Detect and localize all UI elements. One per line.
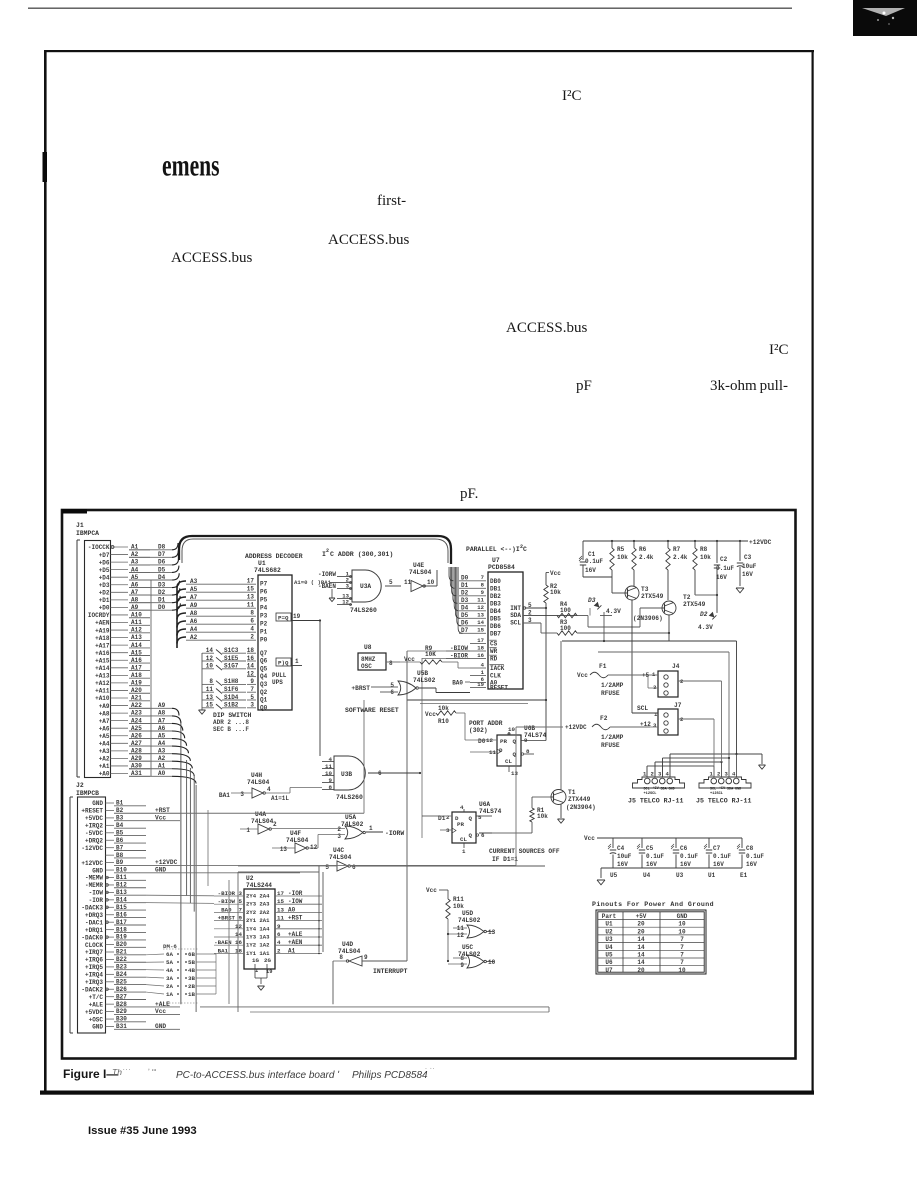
svg-text:(302): (302): [469, 727, 488, 734]
svg-text:(2N3906): (2N3906): [633, 615, 663, 622]
svg-text:DB3: DB3: [490, 601, 501, 608]
svg-text:74LS260: 74LS260: [350, 607, 377, 614]
svg-text:1: 1: [246, 827, 250, 834]
svg-text:74LS74: 74LS74: [479, 808, 502, 815]
svg-text:74LS04: 74LS04: [329, 854, 352, 861]
svg-text:SDA: SDA: [727, 788, 734, 792]
svg-text:I²C: I²C: [769, 342, 789, 358]
svg-text:+A3: +A3: [99, 748, 110, 755]
svg-text:9: 9: [460, 962, 464, 969]
svg-text:74LS02: 74LS02: [458, 917, 481, 924]
svg-text:INTERRUPT: INTERRUPT: [373, 968, 408, 975]
svg-text:16V: 16V: [742, 571, 753, 578]
svg-text:10: 10: [325, 770, 332, 777]
svg-text:15: 15: [477, 627, 484, 634]
svg-text:-5VDC: -5VDC: [85, 830, 103, 837]
svg-text:74LS04: 74LS04: [251, 818, 274, 825]
svg-text:+A11: +A11: [95, 688, 110, 695]
svg-text:1: 1: [369, 825, 373, 832]
svg-text:C6: C6: [680, 845, 688, 852]
svg-text:-IORW: -IORW: [318, 571, 336, 578]
svg-text:PORT ADDR: PORT ADDR: [469, 720, 503, 727]
svg-text:+IRQ3: +IRQ3: [85, 979, 103, 986]
svg-text:2Y3 2A3: 2Y3 2A3: [246, 901, 270, 908]
svg-text:U4H: U4H: [251, 772, 262, 779]
svg-text:(2N3904): (2N3904): [566, 804, 596, 811]
svg-text:+D6: +D6: [99, 559, 110, 566]
svg-text:Philips PCD8584: Philips PCD8584: [352, 1070, 428, 1081]
svg-text:GND: GND: [677, 913, 688, 920]
svg-text:RESET: RESET: [490, 685, 508, 692]
svg-text:10: 10: [678, 921, 686, 928]
svg-text:10k: 10k: [537, 813, 548, 820]
svg-text:PARALLEL <--)I: PARALLEL <--)I: [466, 546, 520, 553]
svg-text:2Y2 2A2: 2Y2 2A2: [246, 909, 270, 916]
svg-text:C2: C2: [720, 556, 728, 563]
svg-text:1/2AMP: 1/2AMP: [601, 682, 624, 689]
svg-text:INT: INT: [510, 605, 521, 612]
svg-text:+D7: +D7: [99, 552, 110, 559]
svg-text:1Y4 1A4: 1Y4 1A4: [246, 925, 270, 932]
svg-text:U6B: U6B: [524, 725, 535, 732]
svg-text:C1: C1: [588, 551, 596, 558]
svg-text:20: 20: [637, 967, 645, 974]
svg-text:+A15: +A15: [95, 657, 110, 664]
svg-text:3B: 3B: [188, 975, 195, 982]
svg-text:BA1: BA1: [219, 792, 230, 799]
svg-text:R8: R8: [700, 546, 708, 553]
svg-text:Q: Q: [469, 832, 473, 839]
svg-text:Q1: Q1: [260, 697, 268, 704]
svg-text:+AEN: +AEN: [95, 620, 110, 627]
svg-text:IBMPCB: IBMPCB: [76, 790, 99, 797]
svg-text:1B: 1B: [188, 991, 195, 998]
svg-text:+A17: +A17: [95, 642, 110, 649]
svg-text:4.3V: 4.3V: [606, 608, 621, 615]
svg-text:10: 10: [427, 579, 435, 586]
svg-text:5A: 5A: [166, 959, 173, 966]
svg-text:2B: 2B: [188, 983, 195, 990]
svg-text:20: 20: [637, 921, 645, 928]
svg-text:first-: first-: [377, 193, 406, 209]
svg-text:11: 11: [404, 579, 412, 586]
svg-text:+DRQ3: +DRQ3: [85, 912, 103, 919]
svg-text:CLOCK: CLOCK: [85, 942, 103, 949]
svg-text:ZTX449: ZTX449: [568, 796, 591, 803]
svg-text:5: 5: [390, 682, 394, 689]
svg-text:10k: 10k: [617, 554, 628, 561]
svg-text:U3: U3: [676, 872, 684, 879]
svg-text:16V: 16V: [617, 861, 628, 868]
svg-text:PULL: PULL: [272, 672, 287, 679]
svg-text:2G: 2G: [264, 957, 271, 964]
svg-text:CS: CS: [490, 641, 498, 648]
svg-text:14: 14: [637, 959, 645, 966]
svg-text:4B: 4B: [188, 967, 195, 974]
svg-text:P2: P2: [260, 621, 268, 628]
svg-text:F1: F1: [599, 663, 607, 670]
svg-text:U1: U1: [605, 921, 613, 928]
svg-text:16V: 16V: [646, 861, 657, 868]
svg-text:0.1uF: 0.1uF: [585, 558, 603, 565]
svg-text:ADR 2 ...8: ADR 2 ...8: [213, 719, 249, 726]
svg-text:IOCRDY: IOCRDY: [88, 612, 110, 619]
svg-text:8MHZ: 8MHZ: [361, 656, 376, 663]
svg-text:2Y1 2A1: 2Y1 2A1: [246, 917, 270, 924]
svg-text:Figure I—: Figure I—: [63, 1067, 118, 1081]
svg-text:4: 4: [460, 804, 464, 811]
svg-text:R10: R10: [438, 718, 449, 725]
svg-text:-MEMR: -MEMR: [85, 882, 103, 889]
svg-text:R6: R6: [639, 546, 647, 553]
svg-text:U6A: U6A: [479, 801, 490, 808]
svg-text:C8: C8: [746, 845, 754, 852]
svg-text:7: 7: [680, 936, 684, 943]
svg-text:CL: CL: [460, 836, 467, 843]
svg-text:+D3: +D3: [99, 582, 110, 589]
svg-text:1Y1 1A1: 1Y1 1A1: [246, 950, 270, 957]
svg-text:-12VDC: -12VDC: [81, 845, 103, 852]
svg-text:U3: U3: [605, 936, 613, 943]
svg-text:10k: 10k: [700, 554, 711, 561]
svg-text:Q: Q: [469, 815, 473, 822]
svg-text:14: 14: [477, 619, 484, 626]
svg-text:Vcc: Vcc: [584, 835, 595, 842]
svg-text:P1: P1: [260, 629, 268, 636]
svg-text:9: 9: [329, 777, 333, 784]
svg-text:IF D1=1: IF D1=1: [492, 856, 518, 863]
svg-text:+A10: +A10: [95, 695, 110, 702]
svg-text:+IRQ5: +IRQ5: [85, 964, 103, 971]
svg-text:16V: 16V: [716, 574, 727, 581]
svg-text:2: 2: [446, 814, 450, 821]
svg-text:Q7: Q7: [260, 650, 268, 657]
svg-text:10: 10: [508, 726, 515, 733]
svg-text:1: 1: [295, 658, 299, 665]
svg-text:4A: 4A: [166, 967, 173, 974]
svg-text:R5: R5: [617, 546, 625, 553]
svg-text:BA0: BA0: [452, 680, 463, 687]
svg-text:2: 2: [273, 821, 277, 828]
svg-text:R7: R7: [673, 546, 681, 553]
svg-text:J5 TELCO RJ-11: J5 TELCO RJ-11: [628, 798, 683, 805]
svg-text:J1: J1: [76, 522, 84, 529]
svg-text:16V: 16V: [713, 861, 724, 868]
svg-text:1/2AMP: 1/2AMP: [601, 734, 624, 741]
svg-text:U5D: U5D: [462, 910, 473, 917]
svg-text:10k: 10k: [550, 589, 561, 596]
svg-text:12: 12: [310, 844, 318, 851]
svg-text:+5VDC: +5VDC: [85, 815, 103, 822]
svg-text:U3B: U3B: [341, 771, 352, 778]
svg-text:Vcc: Vcc: [425, 711, 436, 718]
svg-text:+D0: +D0: [99, 605, 110, 612]
svg-text:13: 13: [511, 770, 518, 777]
svg-text:13: 13: [488, 929, 496, 936]
svg-text:J4: J4: [672, 663, 680, 670]
svg-text:SCL: SCL: [644, 788, 650, 792]
svg-text:J7: J7: [674, 702, 682, 709]
svg-text:˙ ˙˙: ˙ ˙˙: [425, 1067, 435, 1076]
svg-text:U4E: U4E: [413, 562, 424, 569]
svg-text:17: 17: [247, 578, 255, 585]
svg-text:12: 12: [457, 932, 465, 939]
svg-text:ACCESS.bus: ACCESS.bus: [506, 320, 587, 336]
svg-text:10K: 10K: [425, 651, 436, 658]
svg-text:P0: P0: [260, 637, 268, 644]
svg-text:1Y3 1A3: 1Y3 1A3: [246, 934, 270, 941]
svg-text:RFUSE: RFUSE: [601, 690, 620, 697]
svg-text:SOFTWARE RESET: SOFTWARE RESET: [345, 707, 399, 714]
svg-text:emens: emens: [162, 148, 220, 183]
svg-text:U4C: U4C: [333, 847, 344, 854]
svg-text:U5B: U5B: [417, 670, 428, 677]
svg-text:+A8: +A8: [99, 710, 110, 717]
svg-text:E1: E1: [740, 872, 748, 879]
svg-text:11: 11: [489, 749, 496, 756]
svg-text:T2: T2: [683, 594, 691, 601]
svg-text:+A13: +A13: [95, 673, 110, 680]
svg-text:+A5: +A5: [99, 733, 110, 740]
svg-text:IACK: IACK: [490, 665, 505, 672]
svg-text:+A14: +A14: [95, 665, 110, 672]
svg-text:DB1: DB1: [490, 586, 501, 593]
svg-text:+5V: +5V: [653, 787, 660, 791]
svg-text:A1=1L: A1=1L: [271, 795, 289, 802]
svg-text:10: 10: [678, 967, 686, 974]
svg-text:74LS04: 74LS04: [409, 569, 432, 576]
svg-text:SCL: SCL: [510, 620, 521, 627]
svg-text:C5: C5: [646, 845, 654, 852]
svg-text:7: 7: [680, 959, 684, 966]
svg-text:2A: 2A: [166, 983, 173, 990]
svg-text:+IRQ6: +IRQ6: [85, 957, 103, 964]
svg-text:P3: P3: [260, 613, 268, 620]
svg-text:U4: U4: [605, 944, 613, 951]
svg-text:+12VDC: +12VDC: [749, 539, 772, 546]
svg-text:-IORW: -IORW: [385, 830, 404, 837]
svg-text:0.1uF: 0.1uF: [713, 853, 731, 860]
svg-text:GND: GND: [92, 800, 103, 807]
svg-text:16V: 16V: [585, 567, 596, 574]
svg-text:2.4k: 2.4k: [639, 554, 654, 561]
svg-text:-DACK0: -DACK0: [81, 934, 103, 941]
svg-text:74LS682: 74LS682: [254, 567, 281, 574]
svg-text:+A12: +A12: [95, 680, 110, 687]
svg-text:14: 14: [637, 936, 645, 943]
svg-text:5: 5: [478, 814, 482, 821]
svg-text:4: 4: [329, 756, 333, 763]
svg-text:74LS244: 74LS244: [246, 882, 272, 889]
svg-text:9: 9: [364, 954, 368, 961]
svg-text:7: 7: [481, 574, 484, 581]
svg-text:SDA: SDA: [661, 788, 668, 792]
svg-text:Pinouts For Power And Ground: Pinouts For Power And Ground: [592, 901, 714, 908]
svg-text:U5A: U5A: [345, 814, 356, 821]
svg-text:Vcc: Vcc: [550, 570, 561, 577]
svg-text:+D4: +D4: [99, 574, 110, 581]
svg-text:-IOCCK: -IOCCK: [88, 544, 110, 551]
svg-text:10uF: 10uF: [742, 563, 757, 570]
svg-text:5B: 5B: [188, 959, 195, 966]
svg-text:+A1: +A1: [99, 763, 110, 770]
svg-text:ADDRESS DECODER: ADDRESS DECODER: [245, 553, 303, 560]
svg-text:U7: U7: [605, 967, 613, 974]
svg-text:D3: D3: [588, 597, 596, 604]
svg-text:U4D: U4D: [342, 941, 353, 948]
svg-text:C ADDR (300,301): C ADDR (300,301): [330, 551, 393, 558]
svg-text:+12SCL: +12SCL: [644, 792, 657, 796]
svg-text:2: 2: [250, 634, 254, 641]
svg-text:Q0: Q0: [260, 704, 268, 711]
svg-text:RD: RD: [490, 656, 498, 663]
svg-text:PC-to-ACCESS.bus interface boa: PC-to-ACCESS.bus interface board ʹ: [176, 1070, 340, 1081]
svg-text:4.3V: 4.3V: [698, 624, 713, 631]
svg-text:4: 4: [267, 786, 271, 793]
svg-text:+A0: +A0: [99, 771, 110, 778]
svg-text:SCL: SCL: [637, 705, 648, 712]
svg-text:Q4: Q4: [260, 673, 268, 680]
svg-text:+A19: +A19: [95, 627, 110, 634]
svg-text:Q5: Q5: [260, 665, 268, 672]
svg-text:+D1: +D1: [99, 597, 110, 604]
svg-text:1Y2 1A2: 1Y2 1A2: [246, 942, 270, 949]
svg-text:3: 3: [446, 827, 450, 834]
svg-text:Th˙˙˙: Th˙˙˙: [112, 1067, 131, 1077]
svg-text:U8: U8: [364, 644, 372, 651]
svg-text:D0: D0: [478, 738, 486, 745]
svg-text:-DAC1: -DAC1: [85, 919, 103, 926]
svg-text:RFUSE: RFUSE: [601, 742, 620, 749]
svg-text:Vcc: Vcc: [426, 887, 437, 894]
svg-text:13: 13: [280, 846, 288, 853]
svg-text:3A: 3A: [166, 975, 173, 982]
svg-text:P=Q: P=Q: [278, 615, 289, 622]
svg-text:CLK: CLK: [490, 673, 501, 680]
svg-text:DB6: DB6: [490, 623, 501, 630]
svg-text:-MEMW: -MEMW: [85, 875, 103, 882]
svg-text:ʼ ʺʹ: ʼ ʺʹ: [148, 1068, 157, 1077]
svg-text:0.1uF: 0.1uF: [746, 853, 764, 860]
svg-text:P5: P5: [260, 597, 268, 604]
svg-text:2.4k: 2.4k: [673, 554, 688, 561]
svg-text:100: 100: [560, 607, 571, 614]
svg-text:16V: 16V: [746, 861, 757, 868]
svg-text:-IOW: -IOW: [89, 890, 104, 897]
svg-text:8: 8: [389, 660, 393, 667]
svg-text:12: 12: [477, 604, 484, 611]
svg-text:U5: U5: [605, 952, 613, 959]
svg-text:1: 1: [255, 968, 258, 974]
svg-text:CL: CL: [505, 758, 512, 765]
svg-text:7: 7: [680, 944, 684, 951]
svg-text:8: 8: [339, 954, 343, 961]
svg-text:SDA: SDA: [510, 612, 521, 619]
svg-text:3k-ohm pull-: 3k-ohm pull-: [710, 378, 788, 394]
svg-text:P7: P7: [260, 581, 268, 588]
svg-text:+OSC: +OSC: [89, 1016, 104, 1023]
svg-text:13: 13: [247, 594, 255, 601]
svg-text:Vcc: Vcc: [577, 672, 588, 679]
svg-text:OSC: OSC: [361, 663, 372, 670]
svg-text:10: 10: [678, 928, 686, 935]
svg-text:+BRST: +BRST: [351, 685, 370, 692]
svg-text:10: 10: [488, 959, 496, 966]
svg-text:11: 11: [325, 763, 332, 770]
svg-text:+IRQ7: +IRQ7: [85, 949, 103, 956]
svg-text:+A7: +A7: [99, 718, 110, 725]
svg-text:U4F: U4F: [290, 830, 301, 837]
svg-text:14: 14: [637, 952, 645, 959]
svg-text:+A18: +A18: [95, 635, 110, 642]
svg-text:+A9: +A9: [99, 703, 110, 710]
svg-text:6B: 6B: [188, 951, 195, 958]
svg-text:2Y4 2A4: 2Y4 2A4: [246, 893, 270, 900]
svg-text:WR: WR: [490, 648, 498, 655]
svg-text:DB0: DB0: [490, 578, 501, 585]
svg-text:DB4: DB4: [490, 608, 501, 615]
svg-text:11: 11: [247, 602, 255, 609]
svg-text:+D2: +D2: [99, 590, 110, 597]
svg-text:74LS04: 74LS04: [247, 779, 270, 786]
svg-text:6: 6: [250, 618, 254, 625]
svg-text:F2: F2: [600, 715, 608, 722]
svg-text:+5VDC: +5VDC: [85, 1009, 103, 1016]
svg-text:+5: +5: [642, 672, 650, 679]
svg-text:+12VDC: +12VDC: [81, 860, 103, 867]
svg-text:C3: C3: [744, 554, 752, 561]
svg-text:ACCESS.bus: ACCESS.bus: [171, 250, 252, 266]
svg-text:+12VDC: +12VDC: [565, 724, 587, 731]
svg-text:+D5: +D5: [99, 567, 110, 574]
svg-text:10uF: 10uF: [617, 853, 632, 860]
svg-text:DB5: DB5: [490, 616, 501, 623]
svg-text:DIP SWITCH: DIP SWITCH: [213, 712, 252, 719]
svg-text:2: 2: [337, 826, 341, 833]
svg-text:Issue #35 June 1993: Issue #35 June 1993: [88, 1125, 197, 1137]
svg-text:SCL: SCL: [710, 788, 716, 792]
svg-text:-IOR: -IOR: [89, 897, 104, 904]
svg-text:J2: J2: [76, 782, 84, 789]
svg-text:U2: U2: [246, 875, 254, 882]
svg-text:20: 20: [637, 928, 645, 935]
svg-text:8: 8: [329, 784, 333, 791]
svg-text:GND: GND: [92, 1024, 103, 1031]
svg-text:I²C: I²C: [562, 88, 582, 104]
svg-text:14: 14: [637, 944, 645, 951]
svg-text:3: 3: [337, 833, 341, 840]
svg-text:IBMPCA: IBMPCA: [76, 530, 99, 537]
svg-text:+T/C: +T/C: [89, 994, 104, 1001]
svg-text:U3A: U3A: [360, 583, 371, 590]
svg-text:-DACK2: -DACK2: [81, 986, 103, 993]
svg-text:4: 4: [250, 626, 254, 633]
svg-text:+RESET: +RESET: [81, 808, 103, 815]
svg-text:U4A: U4A: [255, 811, 266, 818]
svg-text:T1: T1: [568, 789, 576, 796]
svg-text:+A16: +A16: [95, 650, 110, 657]
svg-text:12: 12: [486, 737, 493, 744]
svg-text:PR: PR: [457, 821, 464, 828]
svg-text:+IRQ2: +IRQ2: [85, 823, 103, 830]
svg-text:+A4: +A4: [99, 741, 110, 748]
svg-text:T3: T3: [641, 586, 649, 593]
svg-text:74LS260: 74LS260: [336, 794, 363, 801]
svg-text:10k: 10k: [453, 903, 464, 910]
svg-text:8: 8: [250, 610, 254, 617]
svg-text:J5 TELCO RJ-11: J5 TELCO RJ-11: [696, 798, 751, 805]
svg-text:5: 5: [389, 579, 393, 586]
